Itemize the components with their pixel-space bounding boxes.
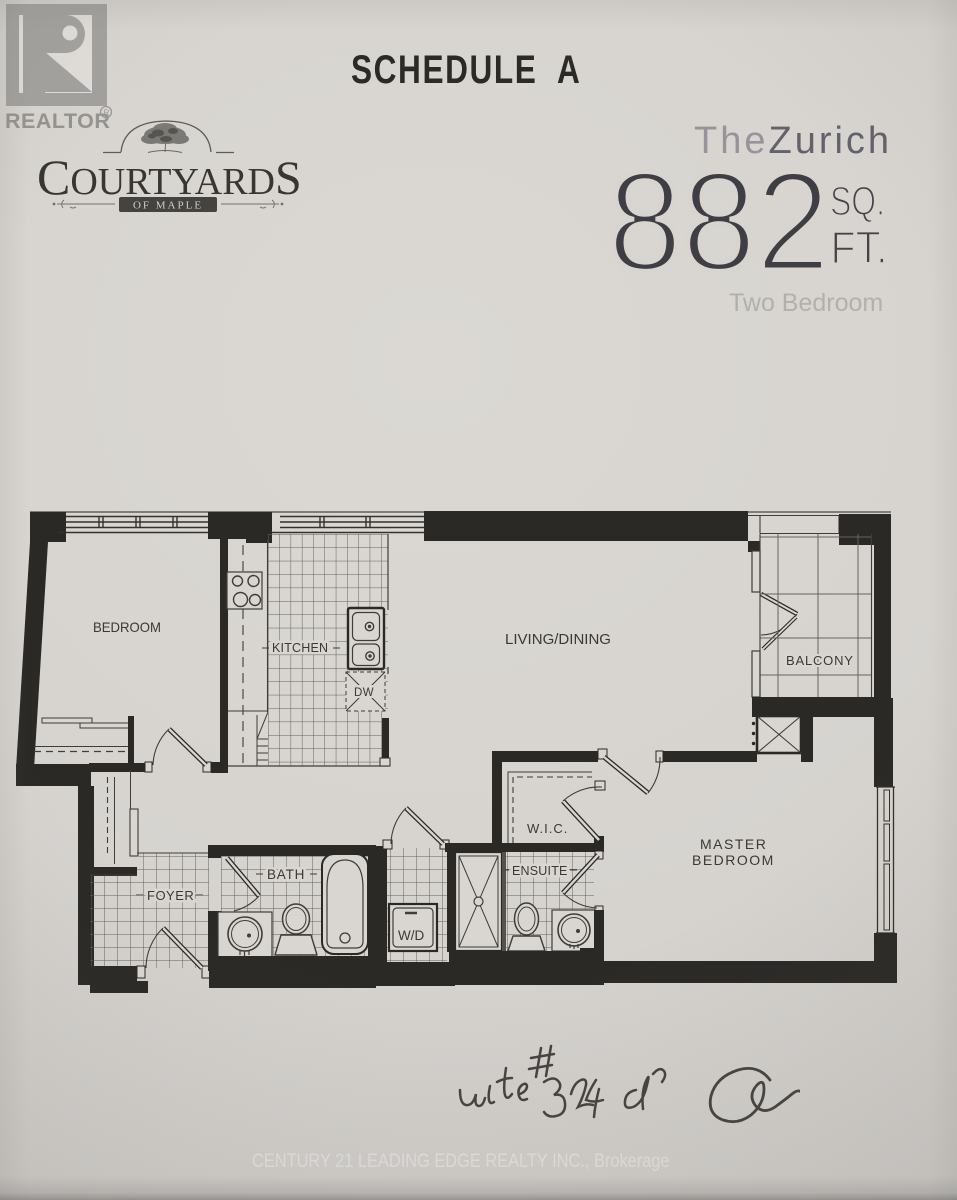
- svg-text:BATH: BATH: [267, 867, 305, 882]
- svg-text:BEDROOM: BEDROOM: [692, 852, 775, 868]
- svg-text:W.I.C.: W.I.C.: [527, 821, 568, 836]
- svg-text:LIVING/DINING: LIVING/DINING: [505, 631, 611, 648]
- svg-text:MASTER: MASTER: [700, 836, 767, 852]
- svg-text:FOYER: FOYER: [147, 888, 194, 903]
- svg-text:W/D: W/D: [398, 928, 424, 943]
- svg-text:KITCHEN: KITCHEN: [272, 641, 328, 655]
- svg-text:BEDROOM: BEDROOM: [93, 619, 161, 635]
- svg-text:DW: DW: [354, 687, 374, 699]
- svg-text:BALCONY: BALCONY: [786, 653, 854, 668]
- svg-text:ENSUITE: ENSUITE: [512, 864, 568, 878]
